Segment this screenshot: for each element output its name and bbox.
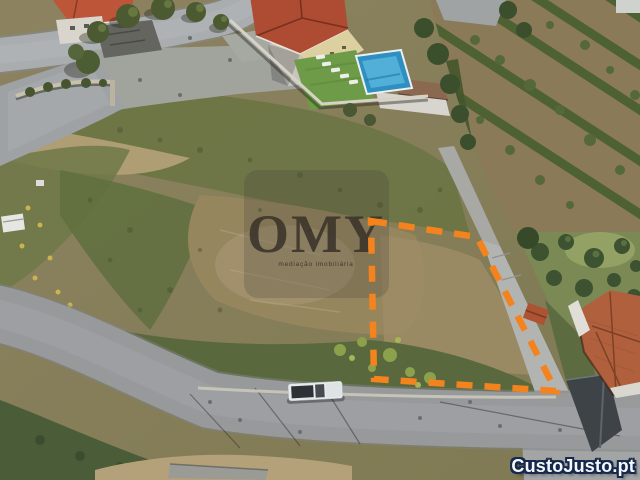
- white-pickup-truck: [286, 381, 345, 404]
- scene-graphic: OMY mediação imobiliária: [0, 0, 640, 480]
- watermark-logo: OMY: [247, 204, 385, 264]
- top-right-shed-roof: [616, 0, 640, 13]
- watermark-tagline: mediação imobiliária: [278, 261, 353, 268]
- watermark-overlay: OMY mediação imobiliária: [244, 170, 389, 298]
- custojusto-watermark: CustoJusto.pt: [511, 456, 635, 477]
- aerial-photo: OMY mediação imobiliária CustoJusto.pt: [0, 0, 640, 480]
